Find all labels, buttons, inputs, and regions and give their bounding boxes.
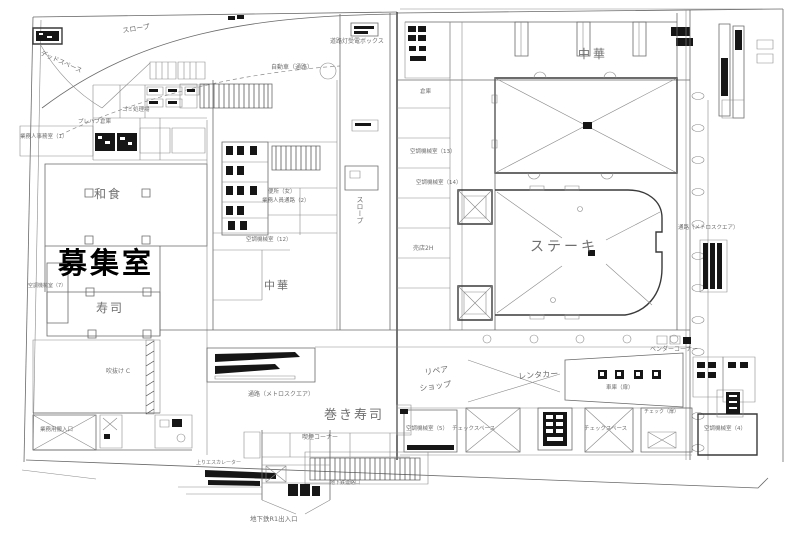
- boshushitsu-label: 募集室: [58, 249, 154, 278]
- floor-plan: スロープデッドスペース自動車（通路）道路灯受電ボックス中華和食寿司中華スロープス…: [0, 0, 787, 544]
- floor-plan-highlight-labels: 募集室: [0, 0, 787, 544]
